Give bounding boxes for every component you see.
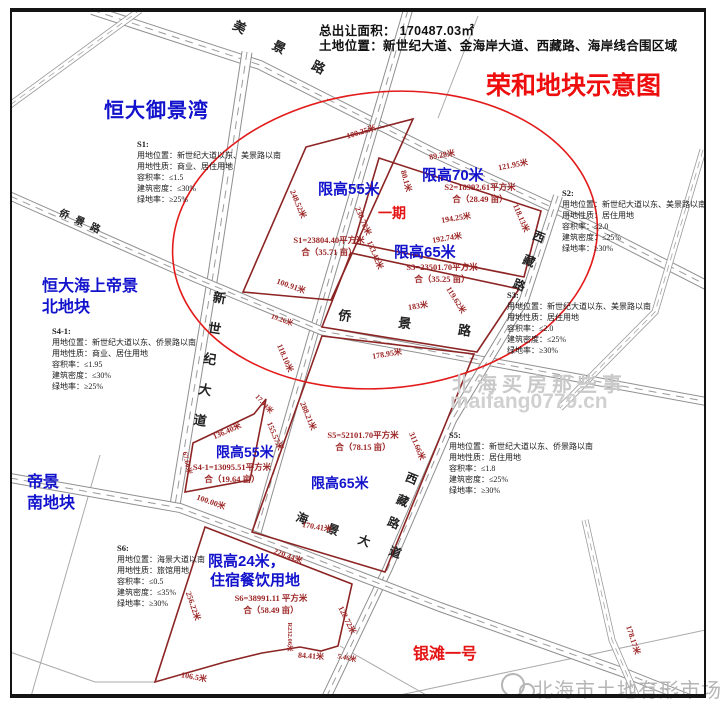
parcel-far: 容积率：≤0.5 [117, 576, 205, 587]
height-limit-24-line2: 住宿餐饮用地 [210, 569, 300, 590]
parcel-density: 建筑密度：≤30% [137, 183, 281, 194]
parcel-id: S6: [117, 543, 205, 554]
parcel-density: 建筑密度：≤35% [117, 587, 205, 598]
parcel-mu: 合（35.71 亩） [283, 246, 375, 258]
parcel-mu: 合（35.25 亩） [392, 273, 492, 285]
parcel-info-s3: S3: 用地位置：新世纪大道以东、美景路以南 用地性质：居住用地 容积率：≤2.… [507, 290, 651, 356]
map-title: 荣和地块示意图 [486, 66, 661, 102]
parcel-info-s2: S2: 用地位置：新世纪大道以东、美景路以南 用地性质：居住用地 容积率：≤2.… [562, 188, 706, 254]
dimension-label: 84.41米 [298, 650, 325, 663]
parcel-green: 绿地率：≥30% [117, 598, 205, 609]
parcel-s2-area-label: S2=18992.61平方米 合（28.49 亩） [425, 181, 535, 205]
parcel-area: S1=23804.40平方米 [283, 234, 375, 246]
parcel-density: 建筑密度：≤25% [449, 474, 593, 485]
parcel-area: S3=23501.70平方米 [392, 261, 492, 273]
parcel-location: 用地位置：新世纪大道以东、侨景路以南 [52, 337, 196, 348]
parcel-s5-area-label: S5=52101.70平方米 合（78.15 亩） [318, 429, 408, 453]
parcel-location: 用地位置：新世纪大道以东、美景路以南 [562, 199, 706, 210]
parcel-green: 绿地率：≥30% [449, 485, 593, 496]
parcel-mu: 合（28.49 亩） [425, 193, 535, 205]
total-area-line: 总出让面积： 170487.03㎡ [319, 24, 474, 39]
parcel-location: 用地位置：新世纪大道以东、美景路以南 [137, 150, 281, 161]
parcel-mu: 合（58.49 亩） [225, 604, 317, 616]
parcel-mu: 合（19.64 亩） [188, 473, 276, 485]
parcel-s1-area-label: S1=23804.40平方米 合（35.71 亩） [283, 234, 375, 258]
parcel-s6-area-label: S6=38991.11 平方米 合（58.49 亩） [225, 592, 317, 616]
parcel-nature: 用地性质：商业、居住用地 [52, 348, 196, 359]
parcel-id: S3: [507, 290, 651, 301]
parcel-far: 容积率：≤1.95 [52, 359, 196, 370]
parcel-nature: 用地性质：商业、居住用地 [137, 161, 281, 172]
parcel-area: S5=52101.70平方米 [318, 429, 408, 441]
height-limit-55-circle: 限高55米 [318, 178, 380, 199]
height-limit-65-mid: 限高65米 [311, 473, 369, 493]
parcel-area: S4-1=13095.51平方米 [188, 461, 276, 473]
parcel-area: S2=18992.61平方米 [425, 181, 535, 193]
parcel-id: S5: [449, 430, 593, 441]
parcel-density: 建筑密度：≤25% [562, 232, 706, 243]
parcel-green: 绿地率：≥30% [507, 345, 651, 356]
parcel-location: 用地位置：新世纪大道以东、美景路以南 [507, 301, 651, 312]
parcel-nature: 用地性质：旅馆用地 [117, 565, 205, 576]
parcel-far: 容积率：≤2.0 [562, 221, 706, 232]
parcel-density: 建筑密度：≤25% [507, 334, 651, 345]
dimension-label: R232.06米 [286, 622, 296, 651]
parcel-id: S2: [562, 188, 706, 199]
height-limit-55-mid: 限高55米 [216, 442, 274, 462]
parcel-location: 用地位置：新世纪大道以东、侨景路以南 [449, 441, 593, 452]
height-limit-65-circle: 限高65米 [394, 241, 456, 262]
height-limit-24-line1: 限高24米， [208, 550, 285, 571]
land-location-line: 土地位置：新世纪大道、金海岸大道、西藏路、海岸线合围区域 [319, 39, 677, 54]
land-parcel-map: 总出让面积： 170487.03㎡ 土地位置：新世纪大道、金海岸大道、西藏路、海… [0, 0, 720, 720]
district-label-dijing-line2: 南地块 [27, 489, 75, 513]
wechat-logo-icon [502, 674, 534, 698]
parcel-s3-area-label: S3=23501.70平方米 合（35.25 亩） [392, 261, 492, 285]
parcel-green: 绿地率：≥25% [52, 381, 196, 392]
parcel-location: 用地位置：海景大道以南 [117, 554, 205, 565]
watermark-center-line2: maifang0779.cn [450, 390, 608, 414]
district-label-hengda-yujingwan: 恒大御景湾 [104, 94, 209, 123]
parcel-nature: 用地性质：居住用地 [449, 452, 593, 463]
parcel-green: 绿地率：≥30% [562, 243, 706, 254]
district-label-yintan: 银滩一号 [413, 640, 477, 664]
parcel-s4-1-area-label: S4-1=13095.51平方米 合（19.64 亩） [188, 461, 276, 485]
parcel-id: S1: [137, 139, 281, 150]
parcel-far: 容积率：≤1.5 [137, 172, 281, 183]
parcel-nature: 用地性质：居住用地 [507, 312, 651, 323]
parcel-density: 建筑密度：≤30% [52, 370, 196, 381]
parcel-info-s4-1: S4-1: 用地位置：新世纪大道以东、侨景路以南 用地性质：商业、居住用地 容积… [52, 326, 196, 392]
parcel-mu: 合（78.15 亩） [318, 441, 408, 453]
parcel-nature: 用地性质：居住用地 [562, 210, 706, 221]
phase-one-label: 一期 [376, 203, 408, 223]
parcel-info-s6: S6: 用地位置：海景大道以南 用地性质：旅馆用地 容积率：≤0.5 建筑密度：… [117, 543, 205, 609]
parcel-info-s1: S1: 用地位置：新世纪大道以东、美景路以南 用地性质：商业、居住用地 容积率：… [137, 139, 281, 205]
parcel-area: S6=38991.11 平方米 [225, 592, 317, 604]
road-northwest-minor [10, 10, 140, 105]
parcel-far: 容积率：≤1.8 [449, 463, 593, 474]
parcel-info-s5: S5: 用地位置：新世纪大道以东、侨景路以南 用地性质：居住用地 容积率：≤1.… [449, 430, 593, 496]
district-label-hengda-haishang-line2: 北地块 [42, 293, 90, 317]
parcel-id: S4-1: [52, 326, 196, 337]
parcel-far: 容积率：≤2.0 [507, 323, 651, 334]
parcel-green: 绿地率：≥25% [137, 194, 281, 205]
watermark-bottom: 北海市土地有形市场 [533, 674, 720, 703]
